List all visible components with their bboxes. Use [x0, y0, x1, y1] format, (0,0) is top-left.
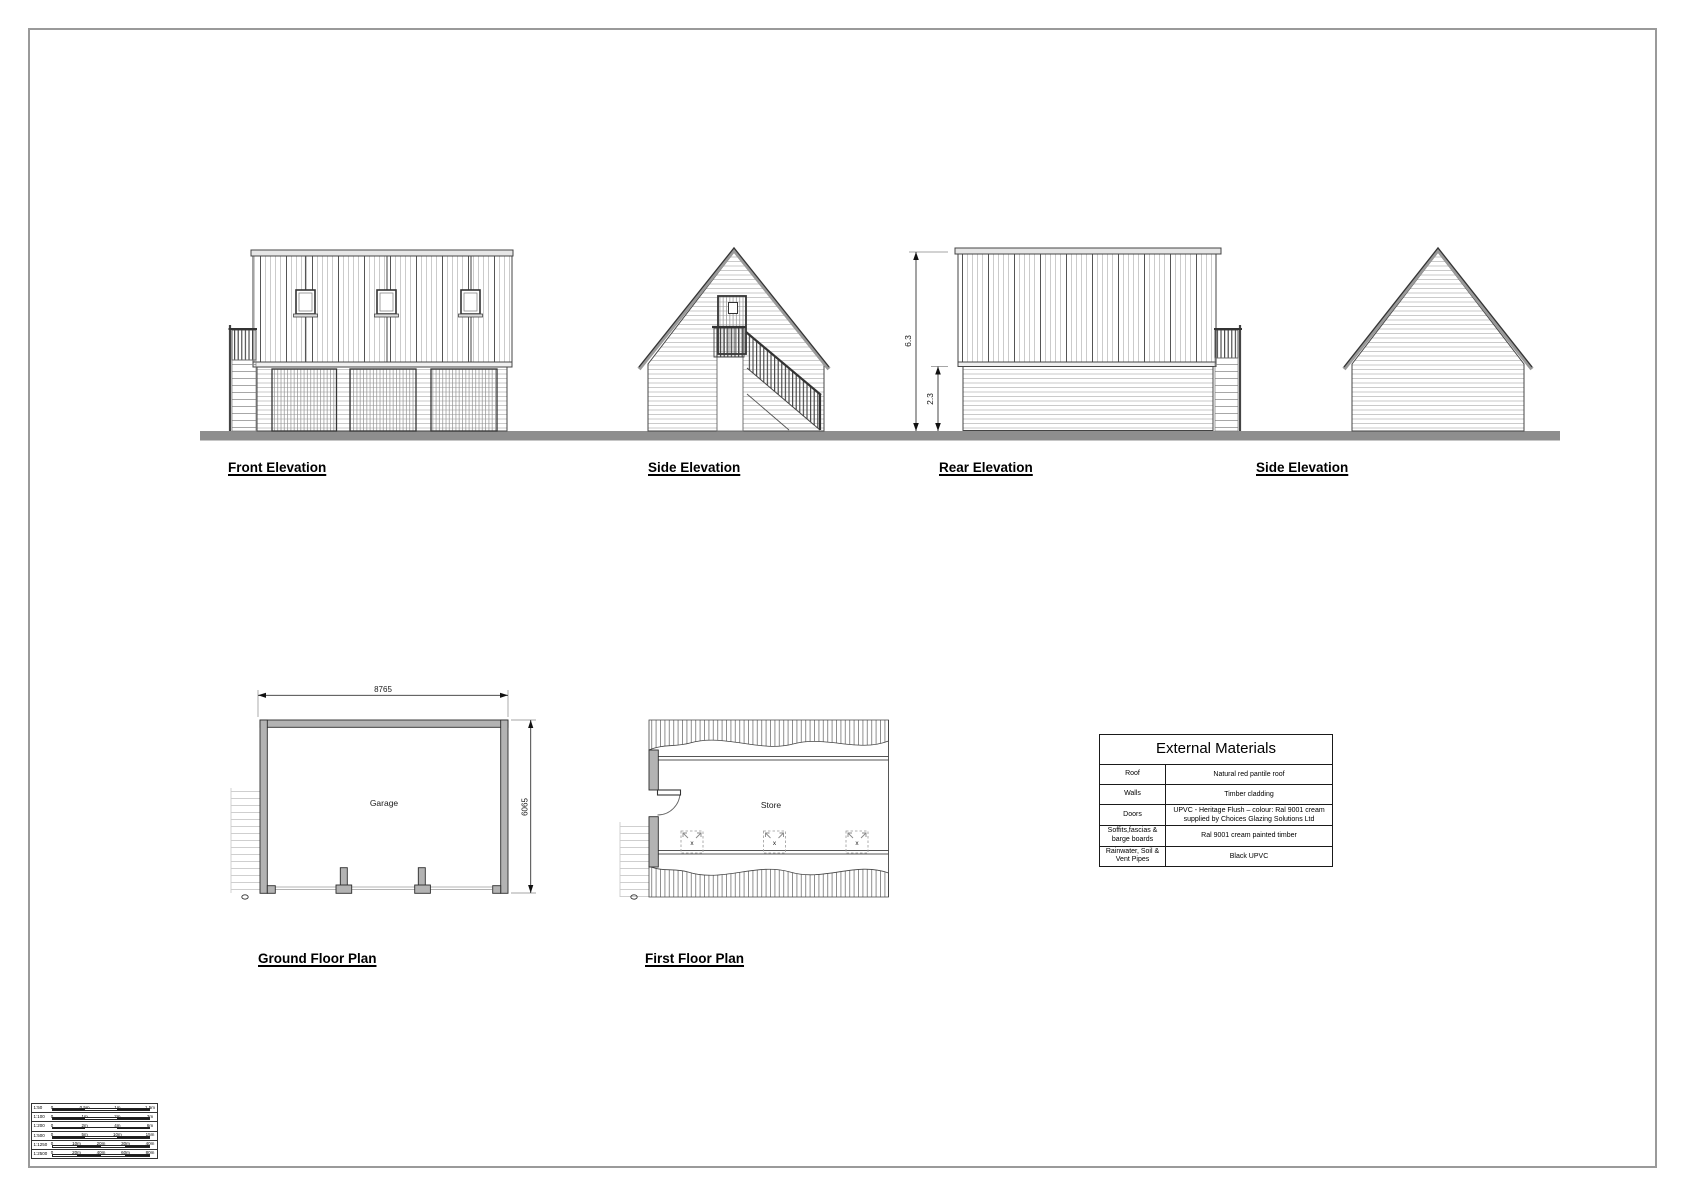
material-item: Walls [1100, 785, 1166, 804]
plan-stair-ground [231, 788, 260, 893]
scale-bar [52, 1127, 150, 1130]
material-spec: Timber cladding [1166, 785, 1332, 804]
scale-bar [52, 1108, 150, 1111]
garage-door-pier [336, 868, 352, 894]
rooflight-mark: x [690, 840, 694, 847]
front-window [294, 290, 318, 317]
scale-label: 1:50 [32, 1104, 52, 1112]
external-stair-front [229, 325, 258, 431]
scale-bar-table: 1:50 0 0.5m 1m 1.5m 1:100 0 1m 2m 3m [31, 1103, 158, 1159]
ground-floor-plan-drawing: Garage 8765 6065 [231, 685, 536, 899]
table-row: Doors UPVC - Heritage Flush – colour: Ra… [1100, 804, 1332, 825]
store-door [658, 790, 681, 815]
drawing-sheet: 6.3 2.3 [0, 0, 1684, 1191]
dimension-plan-width: 8765 [258, 685, 508, 717]
first-floor-plan-drawing: Store x x [620, 720, 889, 899]
rooflight-mark: x [855, 840, 859, 847]
side-elevation-right-title: Side Elevation [1256, 460, 1348, 475]
scale-bar [52, 1145, 150, 1148]
dim-text-plan-depth: 6065 [521, 798, 530, 816]
material-spec: UPVC - Heritage Flush – colour: Ral 9001… [1166, 805, 1332, 825]
table-row: Rainwater, Soil & Vent Pipes Black UPVC [1100, 846, 1332, 867]
scale-label: 1:200 [32, 1122, 52, 1130]
scale-bar [52, 1136, 150, 1139]
scale-bar-row: 1:1250 0 10m 20m 30m 40m [32, 1141, 157, 1150]
first-floor-plan-title: First Floor Plan [645, 951, 744, 966]
side-elevation-left-title: Side Elevation [648, 460, 740, 475]
room-label-garage: Garage [370, 798, 399, 808]
rear-elevation-drawing: 6.3 2.3 [903, 248, 1242, 431]
front-elevation-title: Front Elevation [228, 460, 326, 475]
dimension-eaves-height: 2.3 [925, 367, 948, 432]
scale-bar-row: 1:2500 0 20m 40m 60m 80m [32, 1150, 157, 1158]
rooflight-symbol: x [681, 831, 703, 853]
material-spec: Black UPVC [1166, 847, 1332, 867]
plan-stair-first [620, 822, 649, 897]
rear-elevation-title: Rear Elevation [939, 460, 1033, 475]
external-stair-rear [1214, 325, 1242, 431]
rooflight-mark: x [773, 840, 777, 847]
material-item: Doors [1100, 805, 1166, 825]
dimension-plan-depth: 6065 [511, 720, 536, 893]
dim-text-eaves-height: 2.3 [925, 393, 935, 405]
architectural-linework: 6.3 2.3 [0, 0, 1684, 1191]
stair-landing [712, 327, 746, 431]
garage-door [272, 369, 337, 431]
scale-bar [52, 1117, 150, 1120]
dim-text-overall-height: 6.3 [903, 335, 913, 347]
roof-hatch-band-bottom [649, 866, 889, 897]
scale-label: 1:1250 [32, 1141, 52, 1149]
front-window [375, 290, 399, 317]
rooflight-symbol: x [764, 831, 786, 853]
scale-label: 1:2500 [32, 1150, 52, 1158]
scale-bar-row: 1:500 0 5m 10m 15m [32, 1132, 157, 1141]
side-elevation-left-drawing [639, 248, 829, 431]
material-item: Soffits,fascias & barge boards [1100, 826, 1166, 846]
table-row: Walls Timber cladding [1100, 784, 1332, 804]
front-window [459, 290, 483, 317]
scale-label: 1:100 [32, 1113, 52, 1121]
scale-label: 1:500 [32, 1132, 52, 1140]
external-materials-table: External Materials Roof Natural red pant… [1099, 734, 1333, 867]
materials-table-title: External Materials [1100, 735, 1332, 764]
garage-door [350, 369, 416, 431]
table-row: Soffits,fascias & barge boards Ral 9001 … [1100, 825, 1332, 846]
datum-marker [242, 895, 248, 899]
ground-line [200, 431, 1560, 441]
material-item: Roof [1100, 765, 1166, 784]
scale-bar [52, 1154, 150, 1157]
rooflight-symbol: x [846, 831, 868, 853]
side-elevation-right-drawing [1344, 248, 1532, 431]
material-spec: Natural red pantile roof [1166, 765, 1332, 784]
ground-floor-plan-title: Ground Floor Plan [258, 951, 377, 966]
roof-hatch-band-top [649, 720, 889, 750]
front-elevation-drawing [229, 250, 514, 431]
material-item: Rainwater, Soil & Vent Pipes [1100, 847, 1166, 867]
scale-bar-row: 1:200 0 2m 4m 6m [32, 1122, 157, 1131]
dim-text-plan-width: 8765 [374, 685, 392, 694]
garage-door-pier [415, 868, 431, 894]
scale-bar-row: 1:100 0 1m 2m 3m [32, 1113, 157, 1122]
garage-door [431, 369, 497, 431]
table-row: Roof Natural red pantile roof [1100, 764, 1332, 784]
material-spec: Ral 9001 cream painted timber [1166, 826, 1332, 846]
room-label-store: Store [761, 800, 782, 810]
scale-bar-row: 1:50 0 0.5m 1m 1.5m [32, 1104, 157, 1113]
